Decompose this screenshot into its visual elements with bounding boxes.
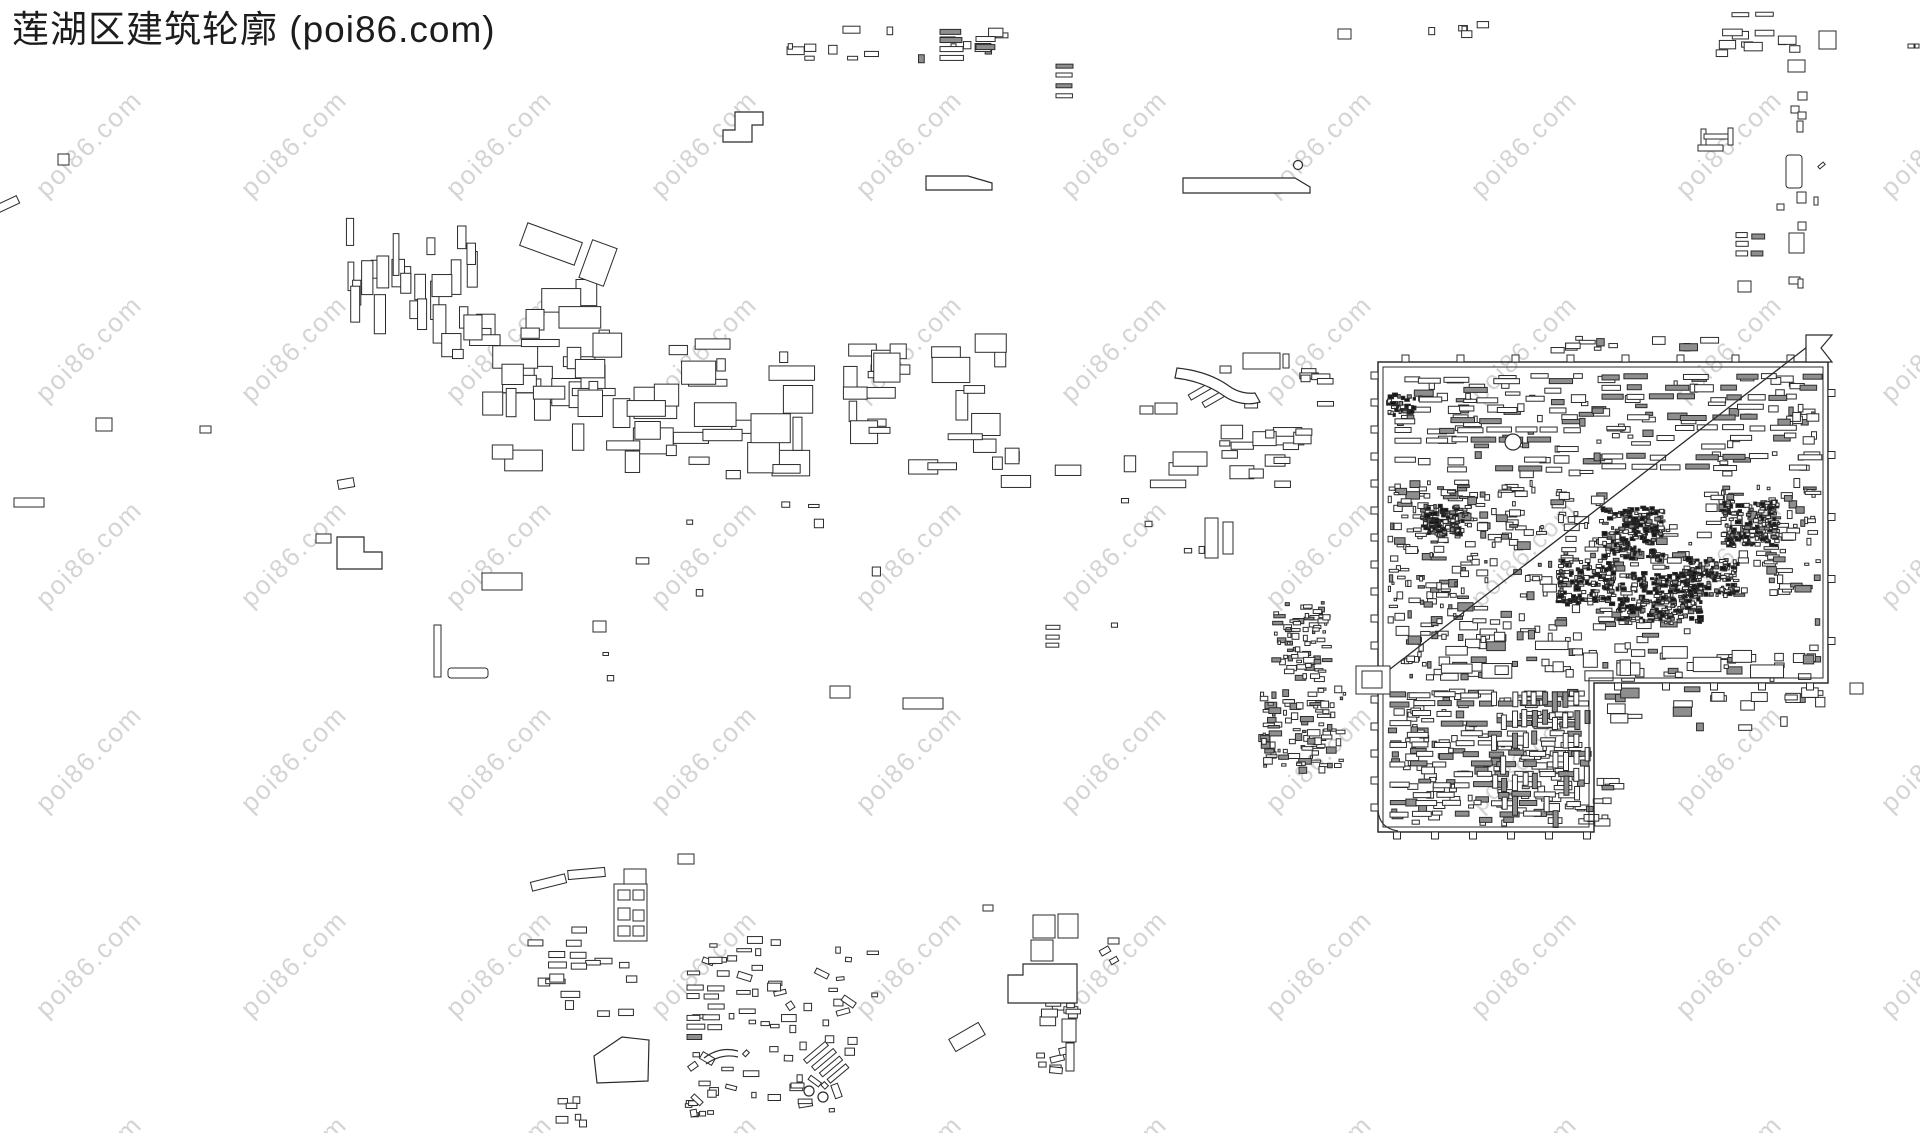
building: [1755, 515, 1757, 518]
building: [1658, 611, 1663, 614]
building: [1619, 549, 1622, 552]
building: [1613, 552, 1616, 554]
building: [1524, 811, 1542, 816]
building: [1426, 438, 1447, 443]
building: [1522, 443, 1528, 448]
building: [1629, 608, 1634, 611]
building: [1474, 606, 1487, 610]
building: [1438, 504, 1442, 507]
building: [1461, 693, 1479, 698]
building: [598, 1011, 610, 1017]
building: [1319, 767, 1325, 773]
building: [1498, 492, 1501, 497]
building: [1390, 742, 1406, 747]
building: [1424, 602, 1432, 607]
building: [316, 534, 331, 543]
building: [533, 386, 564, 399]
building: [1691, 601, 1694, 605]
building: [1625, 518, 1628, 522]
building: [1664, 601, 1668, 604]
building: [1708, 402, 1725, 405]
building: [1642, 514, 1647, 516]
building: [1420, 576, 1423, 581]
wall-tick: [1371, 750, 1378, 757]
building: [1433, 811, 1442, 815]
watermark-text: poi86.com: [849, 1109, 968, 1133]
building: [1697, 576, 1701, 579]
building: [633, 890, 644, 900]
building-circle: [804, 1086, 814, 1096]
building: [1744, 42, 1762, 50]
building: [1805, 491, 1821, 494]
building: [1058, 914, 1078, 938]
building: [1451, 519, 1455, 522]
building: [1621, 688, 1639, 698]
building: [1513, 502, 1516, 506]
building: [1275, 481, 1291, 487]
building: [1671, 593, 1673, 597]
building: [1784, 433, 1795, 438]
building: [1749, 454, 1767, 459]
building: [1272, 658, 1281, 662]
building: [578, 390, 602, 416]
building: [836, 947, 841, 953]
building: [836, 1008, 850, 1016]
building: [1677, 394, 1694, 399]
building: [1641, 506, 1646, 508]
building: [1737, 404, 1763, 409]
building: [1695, 385, 1714, 392]
building: [1594, 590, 1599, 592]
building: [1031, 940, 1053, 961]
building: [804, 1003, 812, 1010]
building: [708, 1111, 714, 1115]
wall-tick: [1615, 683, 1622, 690]
building: [1612, 433, 1619, 437]
building: [1449, 748, 1453, 753]
building: [752, 1092, 756, 1097]
building: [1739, 725, 1752, 731]
building: [1437, 792, 1454, 797]
building: [1656, 538, 1667, 545]
building: [687, 1015, 700, 1020]
building: [1328, 763, 1333, 768]
building: [1586, 806, 1593, 811]
building: [1631, 650, 1644, 657]
building: [1726, 501, 1730, 504]
building: [374, 295, 385, 334]
building: [1266, 755, 1277, 758]
building: [1566, 670, 1573, 678]
building: [1552, 717, 1557, 729]
wall-tick: [1371, 480, 1378, 487]
building: [1701, 619, 1703, 621]
building: [1908, 44, 1914, 48]
building: [1785, 695, 1797, 700]
building: [1288, 753, 1300, 758]
building: [1289, 739, 1295, 743]
building: [1413, 811, 1432, 816]
building: [1401, 396, 1404, 399]
wall-tick: [1371, 372, 1378, 379]
building: [1405, 377, 1420, 382]
building: [1653, 565, 1665, 569]
building: [1441, 589, 1450, 591]
building: [1772, 452, 1777, 456]
building: [1680, 344, 1698, 351]
building: [635, 422, 660, 440]
building: [1574, 768, 1579, 781]
building: [1420, 516, 1424, 518]
building: [1550, 408, 1566, 413]
building: [1807, 538, 1811, 545]
building: [1635, 512, 1638, 515]
building: [1505, 392, 1519, 395]
building: [1278, 641, 1280, 644]
building: [1545, 388, 1561, 393]
building: [1799, 674, 1811, 680]
building: [1736, 233, 1747, 238]
building: [1798, 222, 1806, 230]
building: [1575, 584, 1578, 587]
building: [1492, 735, 1497, 750]
building: [1705, 564, 1709, 566]
building: [1388, 728, 1396, 733]
building: [1274, 632, 1277, 635]
building: [550, 974, 564, 982]
building: [1304, 605, 1313, 608]
building: [1524, 530, 1533, 536]
building: [559, 307, 601, 328]
building: [1537, 532, 1547, 535]
building: [1418, 586, 1424, 588]
building: [1422, 662, 1426, 666]
building: [1522, 692, 1527, 705]
building: [1313, 628, 1319, 631]
building: [983, 905, 993, 911]
building: [1612, 515, 1616, 518]
wall-tick: [1828, 514, 1835, 521]
wall-tick: [1371, 696, 1378, 703]
building: [1771, 536, 1777, 539]
building: [1691, 568, 1694, 571]
building: [1477, 523, 1487, 531]
building: [1671, 617, 1674, 620]
city-gate-inner: [1362, 671, 1382, 688]
building: [848, 1037, 857, 1044]
building: [1571, 580, 1574, 584]
building: [1807, 414, 1819, 421]
watermark-text: poi86.com: [644, 699, 763, 818]
building: [1560, 569, 1562, 573]
building: [618, 926, 630, 936]
building: [1283, 700, 1295, 703]
building: [1666, 566, 1669, 568]
building: [1574, 751, 1579, 764]
building: [1300, 716, 1313, 721]
building: [687, 520, 693, 524]
building: [1288, 633, 1291, 637]
building: [1735, 520, 1741, 523]
building: [1728, 128, 1733, 145]
building: [756, 949, 761, 956]
building: [1562, 415, 1577, 420]
building: [1594, 453, 1600, 461]
building: [1738, 281, 1751, 292]
building: [633, 910, 644, 921]
building: [1388, 410, 1391, 413]
building: [1399, 402, 1403, 406]
building: [1389, 575, 1392, 582]
building: [1416, 801, 1437, 806]
building: [1519, 466, 1542, 471]
building: [1264, 758, 1273, 765]
building: [1297, 660, 1302, 662]
building: [1335, 686, 1342, 693]
watermark-text: poi86.com: [29, 699, 148, 818]
building: [1573, 633, 1581, 640]
building: [1039, 1062, 1046, 1067]
building: [1610, 566, 1624, 571]
building: [964, 42, 971, 49]
building: [919, 55, 925, 63]
building: [1041, 1009, 1057, 1017]
building: [1557, 598, 1562, 600]
building: [1638, 549, 1640, 552]
watermark-text: poi86.com: [1054, 1109, 1173, 1133]
building: [1711, 495, 1723, 499]
building: [1496, 515, 1507, 522]
building: [729, 1013, 734, 1018]
building: [1437, 583, 1441, 589]
building: [1632, 464, 1657, 469]
building: [1418, 458, 1430, 464]
wall-tick: [1371, 642, 1378, 649]
watermark-text: poi86.com: [29, 904, 148, 1023]
building: [747, 937, 762, 944]
building: [1321, 602, 1324, 604]
building: [1220, 441, 1230, 446]
building-circle: [818, 1092, 828, 1102]
building: [1312, 751, 1318, 755]
building: [1311, 641, 1316, 643]
building: [1699, 587, 1703, 590]
building: [976, 37, 995, 42]
building: [1733, 528, 1736, 531]
building: [1398, 395, 1401, 399]
building: [467, 243, 476, 264]
building: [1714, 466, 1737, 471]
building: [1513, 692, 1518, 707]
building: [1394, 493, 1399, 495]
building: [1634, 546, 1636, 549]
building: [1589, 576, 1594, 578]
building: [1755, 543, 1760, 547]
building: [1390, 702, 1409, 707]
building: [874, 353, 900, 382]
building: [1415, 533, 1426, 536]
building: [1066, 1009, 1080, 1014]
building: [1307, 730, 1320, 736]
building: [1205, 518, 1218, 558]
building: [1725, 539, 1727, 541]
wall-tick: [1371, 561, 1378, 568]
building: [773, 465, 800, 474]
building: [1588, 601, 1593, 605]
watermark-text: poi86.com: [1669, 699, 1788, 818]
wall-tick: [1432, 832, 1439, 839]
building: [1618, 607, 1621, 611]
building: [1461, 562, 1472, 565]
building: [1671, 598, 1676, 601]
building: [1062, 1019, 1076, 1042]
building: [1627, 394, 1644, 399]
watermark-text: poi86.com: [1259, 1109, 1378, 1133]
building: [752, 965, 762, 970]
building: [1673, 707, 1691, 716]
building: [1458, 634, 1463, 640]
building: [1662, 647, 1687, 659]
building: [1140, 406, 1153, 414]
building: [1615, 529, 1619, 531]
building: [1650, 609, 1655, 613]
building: [1666, 385, 1689, 390]
building: [1538, 563, 1541, 566]
building: [1592, 593, 1595, 597]
building: [1477, 771, 1491, 776]
building: [1559, 577, 1562, 580]
building: [1787, 394, 1797, 399]
building: [1454, 614, 1456, 617]
building: [1394, 598, 1396, 600]
building: [1513, 711, 1518, 727]
building: [1046, 643, 1059, 647]
building: [1578, 571, 1584, 574]
building: [1447, 490, 1455, 493]
building: [1621, 592, 1632, 595]
building: [1477, 570, 1488, 576]
building: [1568, 563, 1570, 567]
building: [1419, 487, 1426, 491]
building: [743, 1050, 750, 1057]
building: [1303, 627, 1308, 631]
building: [1697, 532, 1711, 538]
building: [1555, 620, 1566, 626]
wall-tick: [1371, 426, 1378, 433]
building: [1444, 377, 1469, 382]
building: [1767, 567, 1776, 574]
building: [1744, 536, 1749, 539]
building: [1633, 553, 1635, 555]
building: [1606, 550, 1610, 553]
wall-tick: [1371, 615, 1378, 622]
building: [626, 976, 636, 982]
building: [520, 223, 583, 265]
building: [1559, 564, 1564, 567]
building: [1403, 410, 1407, 413]
building: [1808, 519, 1816, 523]
building: [1650, 512, 1655, 515]
building: [1458, 428, 1483, 433]
building: [1433, 783, 1450, 788]
building: [1705, 573, 1710, 575]
building: [1567, 802, 1581, 807]
building: [346, 218, 353, 245]
building: [1605, 584, 1608, 586]
building: [1543, 710, 1548, 724]
building: [1777, 569, 1792, 573]
building: [1661, 596, 1666, 600]
building: [377, 256, 389, 288]
building: [1471, 761, 1492, 766]
building: [1528, 630, 1534, 639]
building: [1643, 588, 1646, 592]
building: [1732, 542, 1735, 545]
building: [1773, 523, 1776, 525]
building: [1549, 379, 1572, 384]
building: [1471, 553, 1478, 555]
building: [1340, 697, 1342, 700]
building: [1602, 522, 1608, 524]
building: [1615, 532, 1619, 534]
building: [1665, 579, 1668, 583]
building: [1527, 657, 1537, 661]
building: [1530, 751, 1546, 756]
building: [1716, 578, 1720, 580]
building: [1502, 485, 1507, 489]
building: [1274, 612, 1279, 615]
building: [1509, 750, 1524, 755]
building: [1502, 778, 1507, 791]
building: [1761, 517, 1764, 520]
building: [1730, 435, 1751, 440]
building: [1302, 747, 1313, 751]
building: [1410, 674, 1413, 677]
building: [1631, 587, 1636, 591]
building: [1056, 64, 1073, 68]
building: [836, 977, 844, 981]
building: [1598, 559, 1602, 562]
building: [1751, 693, 1767, 702]
building: [1624, 617, 1630, 619]
building: [1648, 649, 1657, 653]
building: [1389, 569, 1398, 572]
building: [1398, 576, 1406, 579]
building: [726, 471, 740, 479]
building: [1637, 600, 1641, 603]
wall-tick: [1732, 355, 1739, 362]
building: [1431, 532, 1435, 534]
building: [1579, 412, 1593, 416]
building: [1638, 523, 1643, 527]
building: [1441, 664, 1472, 673]
building: [1527, 592, 1534, 600]
building: [1461, 520, 1464, 523]
building: [829, 45, 837, 54]
building: [1455, 480, 1469, 484]
building: [1334, 763, 1341, 767]
building: [1552, 400, 1565, 405]
building: [1145, 521, 1152, 526]
building: [1402, 415, 1408, 418]
building: [737, 949, 752, 952]
building: [1609, 344, 1618, 348]
building: [1306, 663, 1312, 667]
wall-tick: [1470, 832, 1477, 839]
building: [1221, 425, 1242, 439]
building: [1523, 773, 1528, 786]
building: [1263, 733, 1265, 735]
